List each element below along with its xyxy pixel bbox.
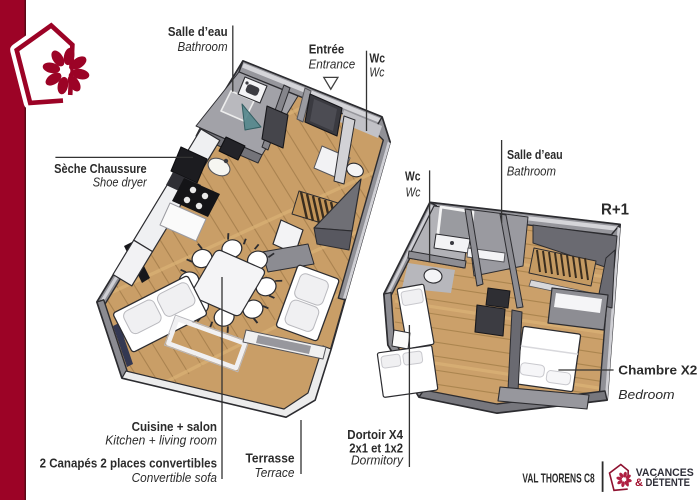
svg-text:Shoe dryer: Shoe dryer [93,175,148,189]
svg-text:Bedroom: Bedroom [618,387,674,402]
svg-text:Terrasse: Terrasse [246,452,295,466]
svg-text:Chambre X2: Chambre X2 [618,362,697,377]
svg-text:Dortoir X4: Dortoir X4 [347,428,403,442]
svg-text:DÉTENTE: DÉTENTE [646,476,691,489]
svg-text:Entrance: Entrance [309,58,356,72]
svg-text:Convertible sofa: Convertible sofa [132,471,217,485]
svg-text:R+1: R+1 [601,202,629,219]
svg-text:Bathroom: Bathroom [178,40,228,54]
svg-text:Terrace: Terrace [255,466,295,480]
svg-text:Wc: Wc [406,185,422,199]
svg-text:VAL THORENS C8: VAL THORENS C8 [522,471,594,485]
svg-text:Sèche Chaussure: Sèche Chaussure [54,162,147,176]
svg-text:&: & [635,477,643,489]
svg-text:Salle d’eau: Salle d’eau [507,148,563,162]
svg-text:Cuisine + salon: Cuisine + salon [132,420,217,434]
svg-text:Bathroom: Bathroom [507,165,556,179]
svg-text:Wc: Wc [405,169,421,183]
svg-text:Wc: Wc [369,51,385,65]
svg-text:Entrée: Entrée [309,43,345,57]
svg-text:Salle d’eau: Salle d’eau [168,25,228,39]
svg-text:2 Canapés 2 places convertible: 2 Canapés 2 places convertibles [40,456,217,470]
svg-text:Kitchen + living room: Kitchen + living room [105,434,217,448]
svg-text:Dormitory: Dormitory [351,454,404,468]
svg-text:Wc: Wc [369,66,385,80]
